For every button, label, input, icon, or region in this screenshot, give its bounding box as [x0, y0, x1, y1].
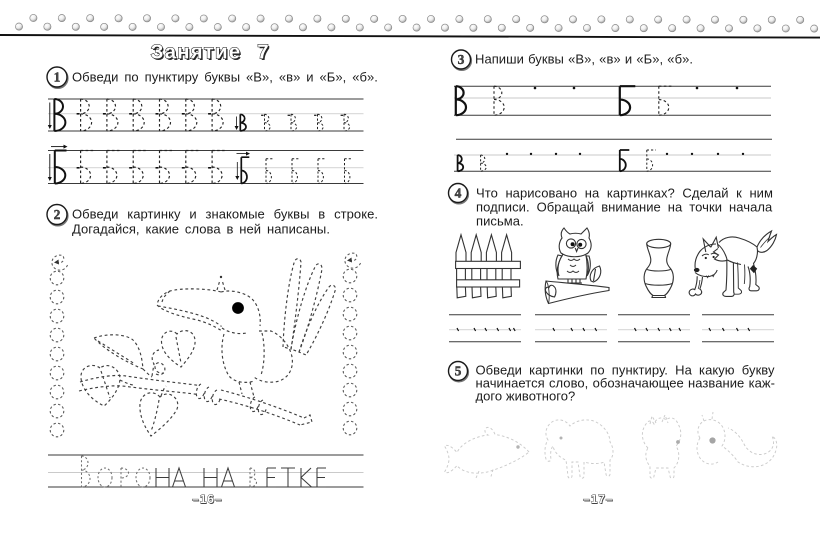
svg-text:5: 5 [455, 364, 462, 379]
svg-text:Догадайся, какие слова в ней н: Догадайся, какие слова в ней написаны. [72, 222, 330, 237]
svg-text:–17–: –17– [583, 492, 613, 506]
svg-text:дого животного?: дого животного? [476, 389, 576, 404]
svg-text:3: 3 [458, 52, 465, 67]
svg-text:подписи. Обращай внимание на т: подписи. Обращай внимание на точки начал… [476, 200, 773, 215]
svg-text:Что нарисовано на картинках? С: Что нарисовано на картинках? Сделай к ни… [476, 186, 773, 201]
svg-text:–16–: –16– [192, 492, 222, 506]
svg-text:4: 4 [455, 186, 462, 201]
svg-text:Обведи по пунктиру буквы «В»,: Обведи по пунктиру буквы «В», «в» и «Б»,… [72, 70, 378, 85]
svg-text:письма.: письма. [476, 214, 524, 229]
svg-text:Напиши буквы «В», «в» и «Б», «: Напиши буквы «В», «в» и «Б», «б». [475, 52, 693, 67]
svg-text:2: 2 [54, 207, 61, 222]
svg-text:Обведи картинку и знакомые бук: Обведи картинку и знакомые буквы в строк… [72, 207, 378, 222]
svg-text:1: 1 [54, 70, 61, 85]
